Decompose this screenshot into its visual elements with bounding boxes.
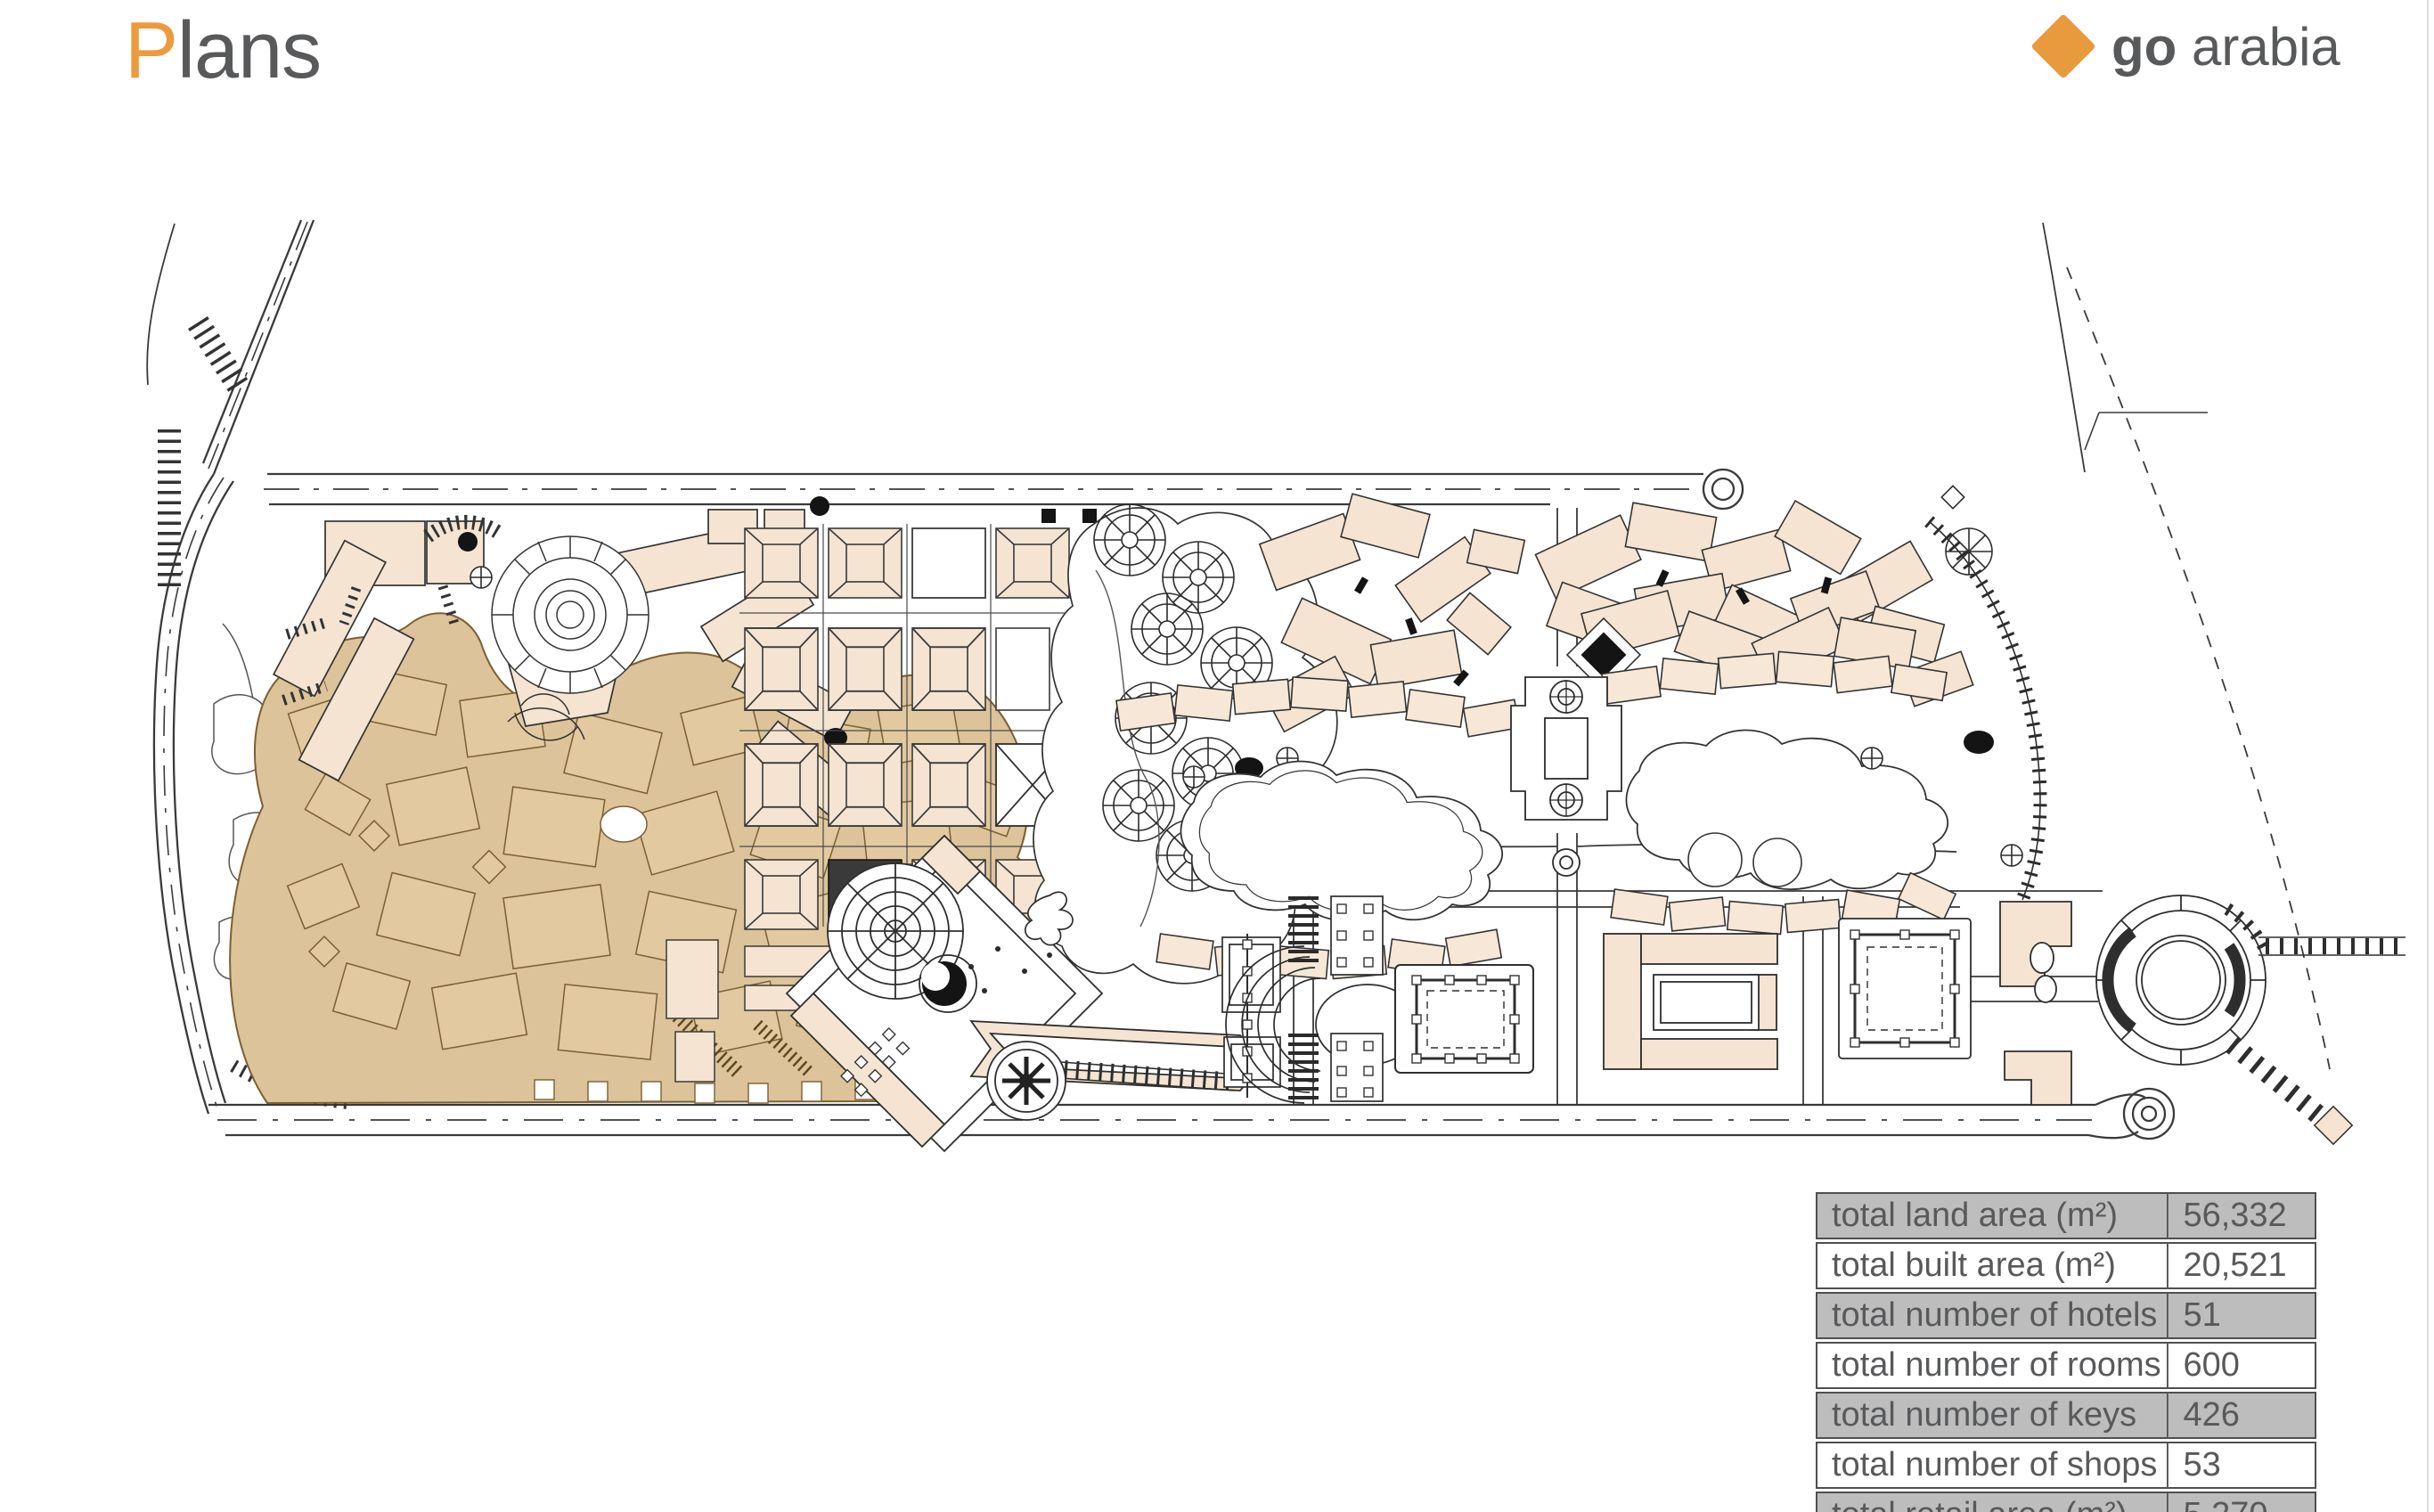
table-row: total number of shops53: [1816, 1442, 2316, 1489]
stat-value: 5,270: [2168, 1492, 2316, 1512]
stat-label: total number of rooms: [1816, 1342, 2168, 1389]
stat-value: 56,332: [2168, 1192, 2316, 1239]
table-row: total land area (m²)56,332: [1816, 1192, 2316, 1239]
stat-label: total built area (m²): [1816, 1242, 2168, 1289]
round-hotel-marina: [2096, 895, 2405, 1144]
stat-label: total retail area (m²): [1816, 1492, 2168, 1512]
table-row: total number of rooms600: [1816, 1342, 2316, 1389]
stat-label: total land area (m²): [1816, 1192, 2168, 1239]
stat-label: total number of hotels: [1816, 1292, 2168, 1339]
lagoon-villas-east: [1602, 651, 2022, 934]
table-row: total retail area (m²)5,270: [1816, 1492, 2316, 1512]
twin-courtyard-hotel: [1604, 902, 2071, 1105]
stat-value: 51: [2168, 1292, 2316, 1339]
table-row: total number of keys426: [1816, 1392, 2316, 1439]
stat-value: 53: [2168, 1442, 2316, 1489]
stat-value: 426: [2168, 1392, 2316, 1439]
courtyard-hotel: [1395, 965, 1533, 1073]
page-edge-line: [2427, 0, 2429, 1512]
stat-label: total number of shops: [1816, 1442, 2168, 1489]
stats-table-body: total land area (m²)56,332total built ar…: [1816, 1192, 2316, 1512]
table-row: total built area (m²)20,521: [1816, 1242, 2316, 1289]
stats-table: total land area (m²)56,332total built ar…: [1816, 1189, 2316, 1512]
stat-value: 600: [2168, 1342, 2316, 1389]
stat-value: 20,521: [2168, 1242, 2316, 1289]
table-row: total number of hotels51: [1816, 1292, 2316, 1339]
stat-label: total number of keys: [1816, 1392, 2168, 1439]
slide-page: Plans go arabia: [0, 0, 2434, 1512]
